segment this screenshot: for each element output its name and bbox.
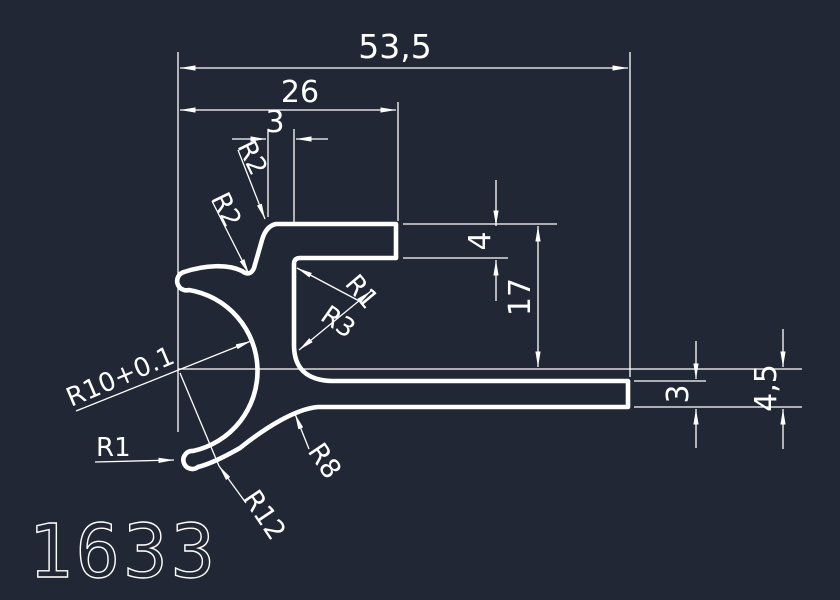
dim-text-flange-thickness: 4 bbox=[463, 231, 498, 250]
dim-text-leg-thickness: 3 bbox=[661, 384, 696, 403]
dim-flange-width: 26 bbox=[180, 75, 396, 110]
radius-web-fillet: R3 bbox=[299, 291, 371, 350]
radius-text-flange-corner: R2 bbox=[231, 136, 273, 180]
radius-curl-inner: R10+0.1 bbox=[62, 341, 251, 413]
leader-line bbox=[295, 414, 309, 449]
dim-overall-width: 53,5 bbox=[180, 27, 628, 68]
radius-text-leg-root-fillet: R8 bbox=[301, 438, 347, 485]
dim-text-flange-width: 26 bbox=[281, 75, 319, 110]
radius-leg-root-fillet: R8 bbox=[295, 414, 347, 485]
radius-text-finger-tip: R1 bbox=[96, 433, 131, 463]
radius-finger-tip: R1 bbox=[95, 433, 174, 463]
dim-text-flange-to-axis: 17 bbox=[503, 278, 538, 316]
dim-flange-thickness: 4 bbox=[463, 180, 498, 301]
dim-text-axis-to-bottom: 4,5 bbox=[749, 364, 784, 412]
part-number-label: 1633 bbox=[28, 509, 218, 595]
dim-text-top-wall: 3 bbox=[265, 105, 284, 140]
radius-text-inner-corner: R1 bbox=[339, 269, 384, 315]
radius-text-finger-crease: R2 bbox=[205, 188, 247, 232]
cad-drawing-canvas: 53,5 26 3 4 17 3 4,5 R2 R2 bbox=[0, 0, 840, 600]
dim-flange-to-axis: 17 bbox=[503, 226, 538, 367]
dim-axis-to-bottom: 4,5 bbox=[749, 329, 784, 449]
dim-leg-thickness: 3 bbox=[661, 341, 696, 448]
cad-viewport: 53,5 26 3 4 17 3 4,5 R2 R2 bbox=[0, 0, 840, 600]
dim-text-overall-width: 53,5 bbox=[358, 27, 431, 66]
radius-text-curl-outer: R12 bbox=[236, 485, 291, 546]
profile-outline bbox=[177, 224, 628, 469]
radius-finger-crease: R2 bbox=[205, 188, 249, 274]
radius-text-web-fillet: R3 bbox=[315, 300, 361, 344]
